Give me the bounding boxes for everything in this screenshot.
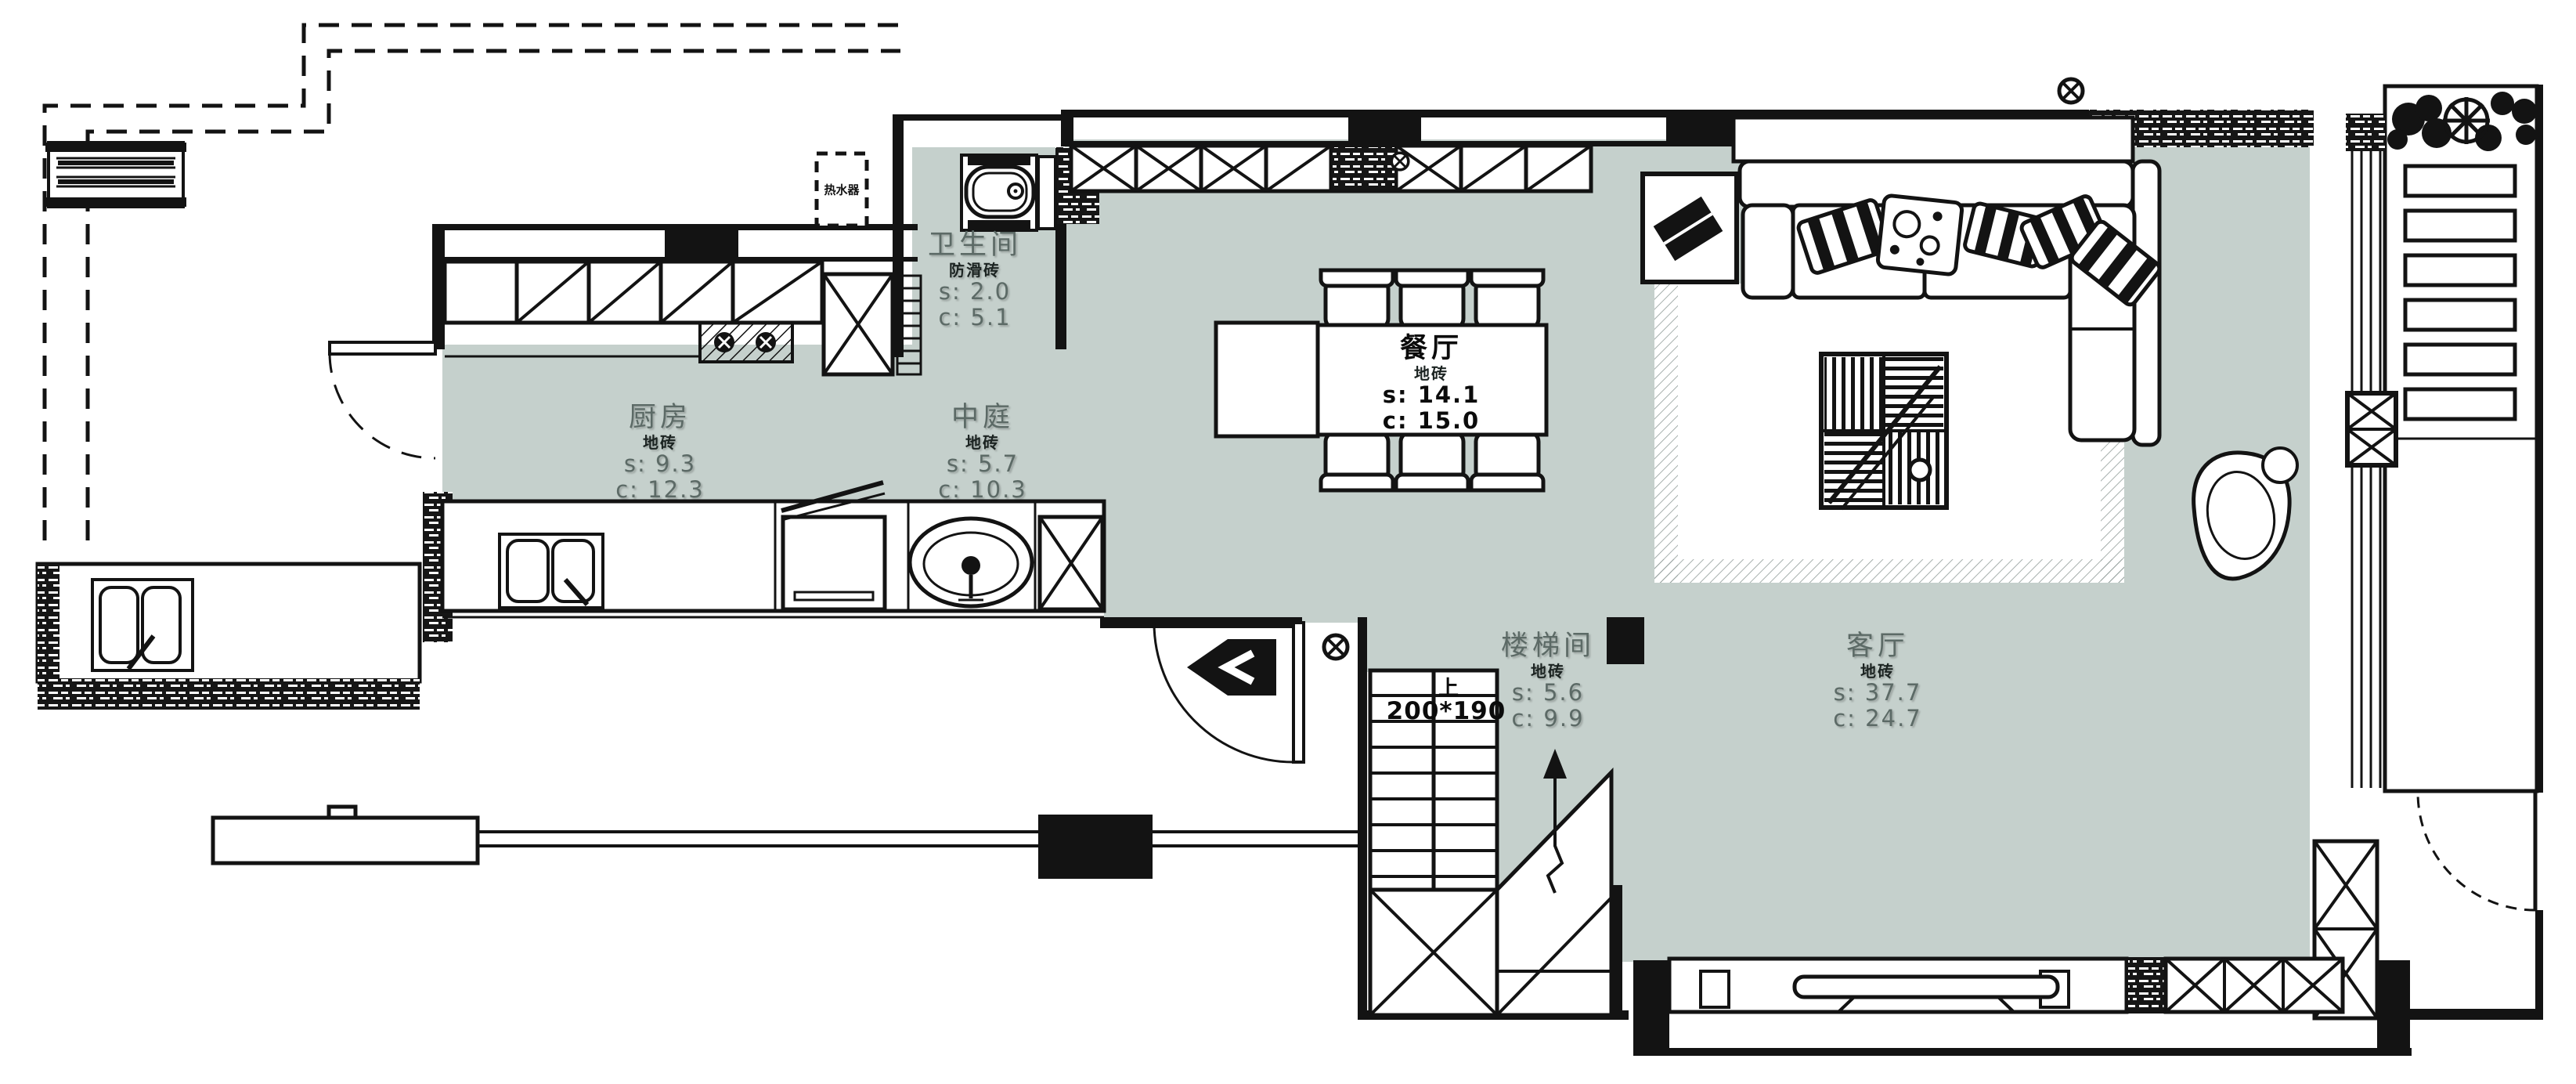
room-label-stairwell: 楼梯间 地砖 s: 5.6 c: 9.9 xyxy=(1501,631,1595,732)
side-table xyxy=(1643,174,1737,282)
plant-flower xyxy=(2443,97,2490,144)
ac-outdoor-unit xyxy=(45,143,186,207)
room-name: 中庭 xyxy=(938,403,1027,434)
room-label-kitchen: 厨房 地砖 s: 9.3 c: 12.3 xyxy=(615,403,705,503)
room-area: s: 5.6 xyxy=(1501,680,1595,706)
room-name: 餐厅 xyxy=(1383,334,1481,365)
room-material: 地砖 xyxy=(1383,365,1481,383)
low-wall-bars xyxy=(213,807,1358,879)
pillow-dotted xyxy=(1877,195,1962,275)
column-block xyxy=(1038,815,1153,879)
room-label-living: 客厅 地砖 s: 37.7 c: 24.7 xyxy=(1833,631,1922,732)
room-area: s: 37.7 xyxy=(1833,680,1922,706)
side-cabinet xyxy=(1216,323,1318,436)
stair-tread-dimension: 200*190 xyxy=(1387,697,1506,725)
bathroom-door xyxy=(1038,157,1055,229)
brick-wall-bottom-left xyxy=(38,678,420,710)
kitchen-door xyxy=(330,342,435,458)
room-material: 地砖 xyxy=(615,434,705,452)
room-name: 楼梯间 xyxy=(1501,631,1595,663)
room-circumference: c: 24.7 xyxy=(1833,706,1922,732)
dining-cabinet-row xyxy=(1071,146,1591,191)
room-material: 防滑砖 xyxy=(928,262,1022,280)
room-name: 客厅 xyxy=(1833,631,1922,663)
room-circumference: c: 5.1 xyxy=(928,305,1022,331)
room-label-atrium: 中庭 地砖 s: 5.7 c: 10.3 xyxy=(938,403,1027,503)
plan-linework xyxy=(0,0,2576,1084)
room-material: 地砖 xyxy=(1501,663,1595,681)
room-material: 地砖 xyxy=(1833,663,1922,681)
room-circumference: c: 9.9 xyxy=(1501,706,1595,732)
tv-wall xyxy=(1633,959,2412,1056)
room-circumference: c: 15.0 xyxy=(1383,408,1481,434)
appliance-box-label: 热水器 xyxy=(824,182,859,198)
bathroom-fixtures xyxy=(961,155,1055,230)
kitchen-upper-cabinets xyxy=(445,262,921,374)
entry-door xyxy=(2418,793,2535,910)
room-material: 地砖 xyxy=(938,434,1027,452)
room-circumference: c: 12.3 xyxy=(615,477,705,503)
room-label-dining: 餐厅 地砖 s: 14.1 c: 15.0 xyxy=(1383,334,1481,434)
washing-machine xyxy=(783,517,885,609)
stove xyxy=(700,323,792,362)
room-label-bathroom: 卫生间 防滑砖 s: 2.0 c: 5.1 xyxy=(928,230,1022,331)
speaker xyxy=(1701,971,1729,1007)
room-name: 厨房 xyxy=(615,403,705,434)
room-name: 卫生间 xyxy=(928,230,1022,262)
room-area: s: 9.3 xyxy=(615,451,705,477)
floor-plan: 卫生间 防滑砖 s: 2.0 c: 5.1 厨房 地砖 s: 9.3 c: 12… xyxy=(0,0,2576,1084)
outdoor-sink-counter xyxy=(38,564,420,710)
tv xyxy=(1795,977,2058,997)
room-area: s: 14.1 xyxy=(1383,382,1481,408)
entrance-arrow-icon xyxy=(1187,639,1276,696)
room-circumference: c: 10.3 xyxy=(938,477,1027,503)
room-area: s: 5.7 xyxy=(938,451,1027,477)
room-area: s: 2.0 xyxy=(928,279,1022,305)
coffee-table xyxy=(1821,354,1946,509)
